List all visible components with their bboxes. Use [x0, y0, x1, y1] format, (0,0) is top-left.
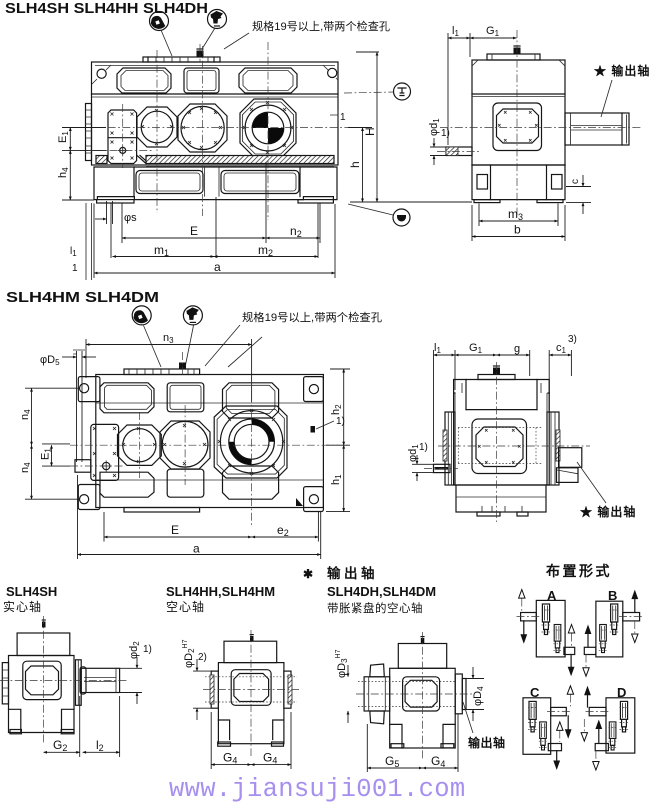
svg-text:l1: l1	[434, 342, 441, 355]
svg-text:n4: n4	[19, 409, 32, 420]
svg-text:规格19号以上,带两个检查孔: 规格19号以上,带两个检查孔	[242, 310, 382, 324]
svg-text:φD5: φD5	[40, 354, 60, 367]
svg-text:SLH4SH: SLH4SH	[6, 584, 57, 599]
svg-text:h1: h1	[330, 474, 343, 485]
svg-text:规格19号以上,带两个检查孔: 规格19号以上,带两个检查孔	[252, 19, 390, 33]
svg-text:E1: E1	[57, 131, 70, 143]
svg-text:b: b	[514, 223, 521, 237]
svg-text:G5: G5	[385, 754, 399, 769]
svg-text:a: a	[214, 260, 221, 274]
svg-text:★ 输出轴: ★ 输出轴	[594, 63, 650, 78]
svg-text:c1: c1	[556, 342, 567, 355]
svg-text:E1: E1	[40, 448, 53, 460]
svg-text:G1: G1	[469, 342, 483, 355]
svg-text:G2: G2	[53, 738, 67, 753]
svg-text:★ 输出轴: ★ 输出轴	[580, 504, 636, 519]
svg-text:实心轴: 实心轴	[3, 599, 42, 614]
svg-text:φd2: φd2	[128, 641, 141, 659]
svg-text:E: E	[190, 224, 198, 238]
svg-text:l1: l1	[70, 246, 77, 258]
svg-text:l2: l2	[96, 738, 104, 753]
svg-text:l1: l1	[452, 25, 459, 38]
svg-text:E: E	[171, 523, 179, 537]
svg-text:1): 1)	[419, 442, 428, 453]
svg-text:n2: n2	[290, 224, 302, 239]
svg-text:布置形式: 布置形式	[546, 563, 612, 579]
svg-text:2): 2)	[198, 652, 207, 663]
svg-text:SLH4HM SLH4DM: SLH4HM SLH4DM	[6, 290, 159, 306]
svg-text:φD4: φD4	[472, 686, 485, 706]
svg-text:a: a	[193, 542, 200, 556]
svg-text:www.jiansuji001.com: www.jiansuji001.com	[169, 775, 465, 804]
svg-text:G4: G4	[223, 751, 237, 766]
svg-text:输出轴: 输出轴	[327, 565, 378, 581]
svg-text:1): 1)	[143, 644, 152, 655]
svg-text:空心轴: 空心轴	[166, 599, 205, 614]
svg-text:SLH4SH SLH4HH SLH4DH: SLH4SH SLH4HH SLH4DH	[5, 1, 208, 17]
svg-text:1: 1	[72, 263, 78, 274]
svg-text:✱: ✱	[303, 567, 313, 581]
svg-text:带胀紧盘的空心轴: 带胀紧盘的空心轴	[327, 601, 423, 615]
svg-text:h2: h2	[330, 404, 343, 415]
svg-text:c: c	[570, 179, 581, 184]
svg-text:G1: G1	[486, 25, 500, 38]
svg-text:G4: G4	[431, 754, 445, 769]
svg-text:e2: e2	[277, 523, 289, 538]
svg-text:G4: G4	[263, 751, 277, 766]
svg-text:1): 1)	[441, 128, 450, 139]
svg-text:输出轴: 输出轴	[468, 735, 506, 750]
svg-text:φD3H7: φD3H7	[335, 649, 349, 678]
svg-text:m3: m3	[508, 207, 523, 222]
svg-text:SLH4DH,SLH4DM: SLH4DH,SLH4DM	[327, 584, 436, 599]
svg-text:m2: m2	[258, 243, 273, 258]
svg-text:φD2H7: φD2H7	[182, 639, 196, 668]
svg-text:3): 3)	[568, 334, 577, 345]
svg-text:h: h	[348, 161, 362, 168]
svg-text:n3: n3	[163, 332, 174, 345]
svg-text:g: g	[514, 343, 520, 355]
svg-text:n4: n4	[19, 462, 32, 473]
svg-text:SLH4HH,SLH4HM: SLH4HH,SLH4HM	[166, 584, 275, 599]
svg-text:φd1: φd1	[428, 118, 441, 136]
svg-text:1): 1)	[336, 416, 345, 427]
svg-text:1: 1	[340, 112, 346, 123]
svg-text:H: H	[363, 127, 377, 136]
svg-text:h4: h4	[57, 167, 70, 178]
svg-text:φs: φs	[124, 212, 137, 224]
svg-text:m1: m1	[154, 243, 169, 258]
